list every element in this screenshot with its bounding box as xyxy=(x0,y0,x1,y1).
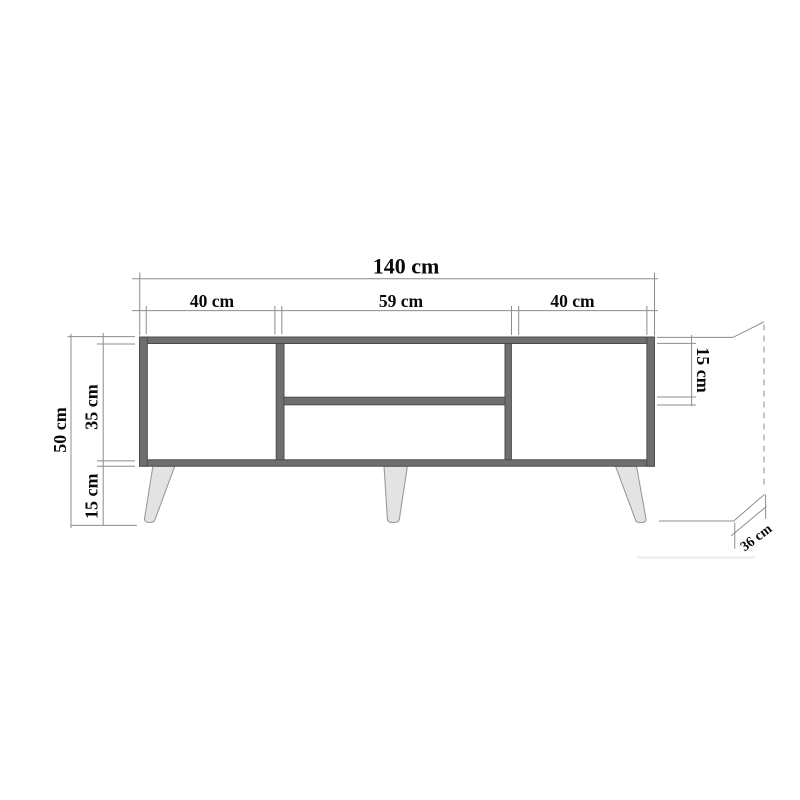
svg-text:15 cm: 15 cm xyxy=(82,474,102,519)
svg-text:140 cm: 140 cm xyxy=(373,254,440,279)
svg-text:35 cm: 35 cm xyxy=(82,384,102,429)
svg-text:40 cm: 40 cm xyxy=(190,291,235,311)
svg-text:15 cm: 15 cm xyxy=(693,347,713,392)
svg-text:40 cm: 40 cm xyxy=(550,291,595,311)
svg-text:50 cm: 50 cm xyxy=(50,407,70,452)
svg-text:59 cm: 59 cm xyxy=(379,291,424,311)
svg-text:36 cm: 36 cm xyxy=(738,521,776,554)
